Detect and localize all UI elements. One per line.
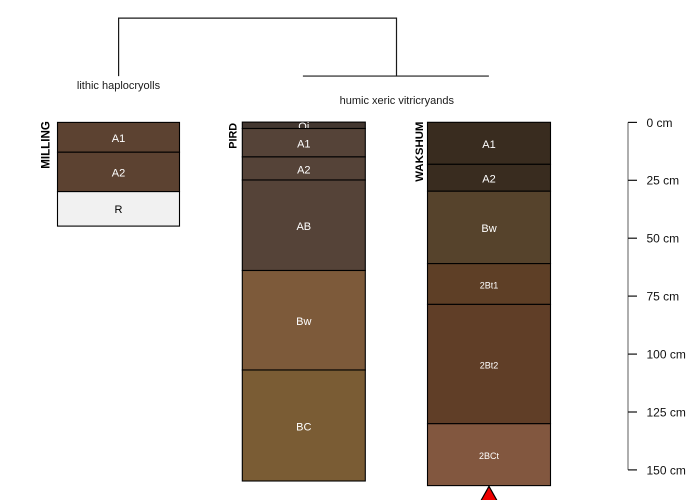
svg-text:A1: A1 [297,139,310,151]
svg-text:Bw: Bw [296,316,311,328]
svg-text:100 cm: 100 cm [647,348,686,362]
svg-text:PIRD: PIRD [227,123,239,149]
svg-text:A2: A2 [297,164,310,176]
svg-text:2BCt: 2BCt [479,451,500,461]
svg-text:AB: AB [296,221,311,233]
svg-text:0 cm: 0 cm [647,116,673,130]
svg-text:A2: A2 [482,174,495,186]
svg-text:50 cm: 50 cm [647,232,680,246]
svg-text:BC: BC [296,421,311,433]
svg-text:25 cm: 25 cm [647,174,680,188]
svg-text:150 cm: 150 cm [647,463,686,477]
svg-text:2Bt2: 2Bt2 [480,360,499,370]
svg-text:lithic haplocryolls: lithic haplocryolls [77,80,161,92]
svg-text:humic xeric vitricryands: humic xeric vitricryands [340,95,455,107]
svg-text:A1: A1 [482,139,495,151]
svg-text:MILLING: MILLING [39,121,52,169]
svg-text:75 cm: 75 cm [647,290,680,304]
svg-text:Bw: Bw [481,223,496,235]
svg-text:2Bt1: 2Bt1 [480,280,499,290]
svg-text:A1: A1 [112,133,125,145]
svg-text:A2: A2 [112,168,125,180]
svg-text:125 cm: 125 cm [647,405,686,419]
svg-text:R: R [115,204,123,216]
svg-text:WAKSHUM: WAKSHUM [414,122,426,182]
